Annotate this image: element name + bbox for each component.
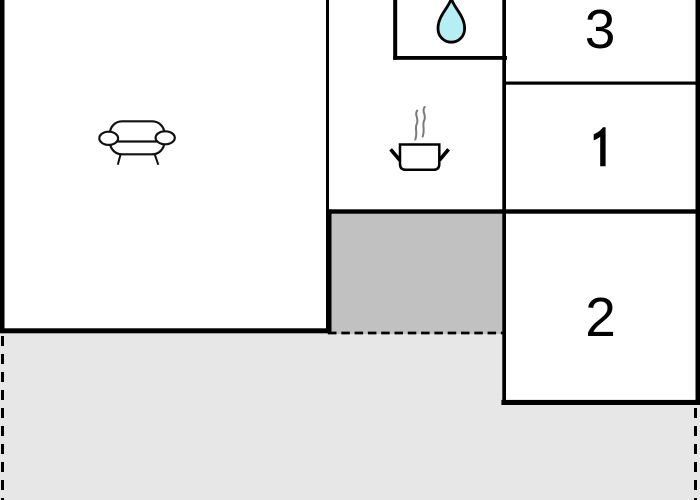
svg-text:2: 2	[585, 286, 616, 348]
svg-text:3: 3	[585, 0, 616, 60]
